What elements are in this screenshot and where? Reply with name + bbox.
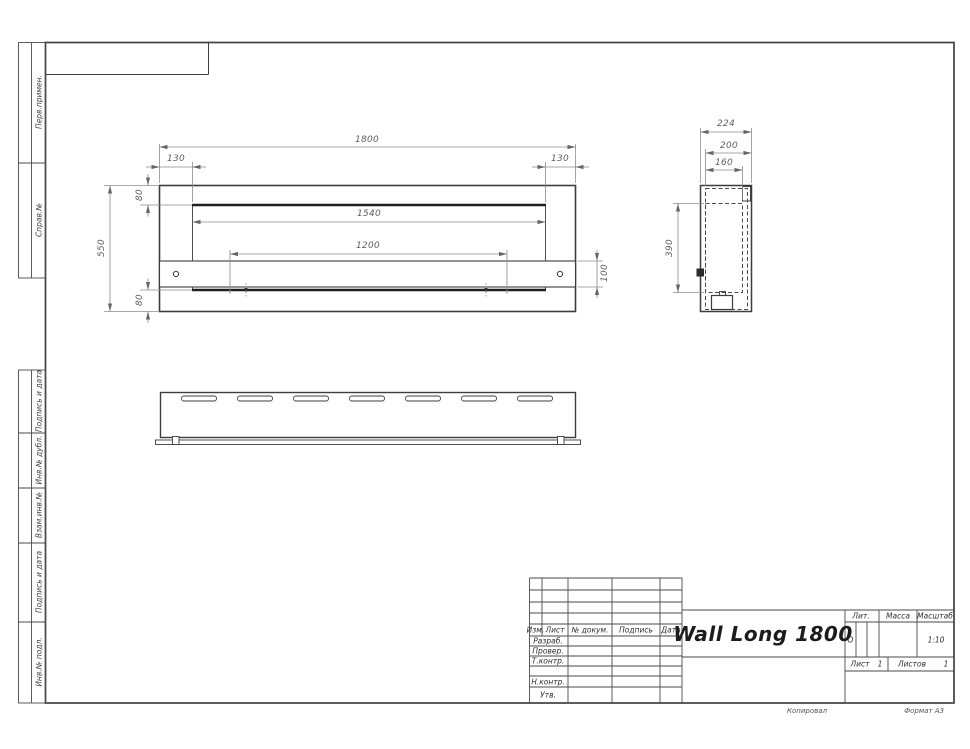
tb-lit-label: Лит.: [852, 612, 869, 621]
margin-label-podpis-data-2: Подпись и дата: [34, 551, 43, 613]
tb-list-label: Лист: [850, 660, 869, 669]
shelf-bar: [160, 261, 576, 287]
dim-right-inset: 130: [551, 154, 569, 164]
dim-inner-depth: 200: [720, 141, 738, 151]
tb-lit-value: О: [848, 636, 854, 645]
burner-slot: [182, 396, 217, 401]
dim-bottom-flange: 80: [135, 294, 145, 306]
dim-total-height: 550: [97, 239, 107, 257]
margin-label-inv-dubl: Инв.№ дубл.: [34, 436, 43, 485]
tb-listov-label: Листов: [898, 660, 926, 669]
tb-row-nkontr: Н.контр.: [531, 677, 565, 686]
dim-opening-width: 1540: [357, 209, 381, 219]
tb-masshtab-label: Масштаб: [917, 612, 953, 621]
bottom-box: [712, 296, 733, 310]
dim-top-flange: 80: [135, 189, 145, 201]
tb-col-ndocum: № докум.: [572, 626, 609, 635]
strip-tab-right: [558, 437, 565, 445]
dim-total-width: 1800: [355, 135, 379, 145]
burner-slot: [462, 396, 497, 401]
tb-row-utv: Утв.: [540, 691, 556, 700]
side-view: [697, 186, 752, 312]
base-strip: [156, 440, 581, 445]
tb-massa-label: Масса: [886, 612, 910, 621]
footer-kopiroval: Копировал: [787, 707, 827, 715]
dim-left-inset: 130: [167, 154, 185, 164]
margin-label-inv-podl: Инв.№ подл.: [34, 637, 43, 686]
margin-label-sprav-no: Справ.№: [34, 203, 43, 237]
burner-slot: [238, 396, 273, 401]
tb-sheet-number: 1: [878, 660, 883, 669]
burner-slot: [406, 396, 441, 401]
tb-sheets-total: 1: [944, 660, 949, 669]
drawing-sheet: 1800 130 130 1540 1200 550 80 80 100 224…: [0, 0, 970, 749]
side-view-dimensions: [673, 128, 752, 293]
drawing-frame: [46, 43, 955, 704]
tb-col-podpis: Подпись: [619, 626, 653, 635]
front-view-dimensions: [104, 144, 603, 323]
mount-hole-right: [557, 271, 562, 276]
tb-row-razrab: Разраб.: [533, 637, 562, 646]
margin-label-podpis-data-1: Подпись и дата: [34, 370, 43, 432]
tb-masshtab-value: 1:10: [928, 636, 945, 645]
document-title: Wall Long 1800: [673, 622, 853, 646]
dim-opening-depth: 160: [715, 158, 733, 168]
wall-clip: [697, 269, 705, 277]
footer-format: Формат А3: [904, 707, 944, 715]
margin-label-vzam-inv: Взам.инв.№: [34, 492, 43, 538]
tb-row-tkontr: Т.контр.: [532, 657, 565, 666]
dim-inner-height: 390: [665, 239, 675, 257]
tb-col-izm: Изм.: [527, 626, 545, 635]
bottom-view: [156, 393, 581, 445]
margin-label-perv-primen: Перв.примен.: [34, 75, 43, 129]
burner-slot: [518, 396, 553, 401]
dim-shelf-height: 100: [600, 264, 610, 282]
burner-slot: [350, 396, 385, 401]
strip-tab-left: [173, 437, 180, 445]
tb-row-prover: Провер.: [532, 647, 563, 656]
mount-hole-left: [173, 271, 178, 276]
burner-slot: [294, 396, 329, 401]
dim-mount-span: 1200: [356, 241, 380, 251]
dim-depth: 224: [717, 119, 735, 129]
tb-col-list: Лист: [545, 626, 564, 635]
